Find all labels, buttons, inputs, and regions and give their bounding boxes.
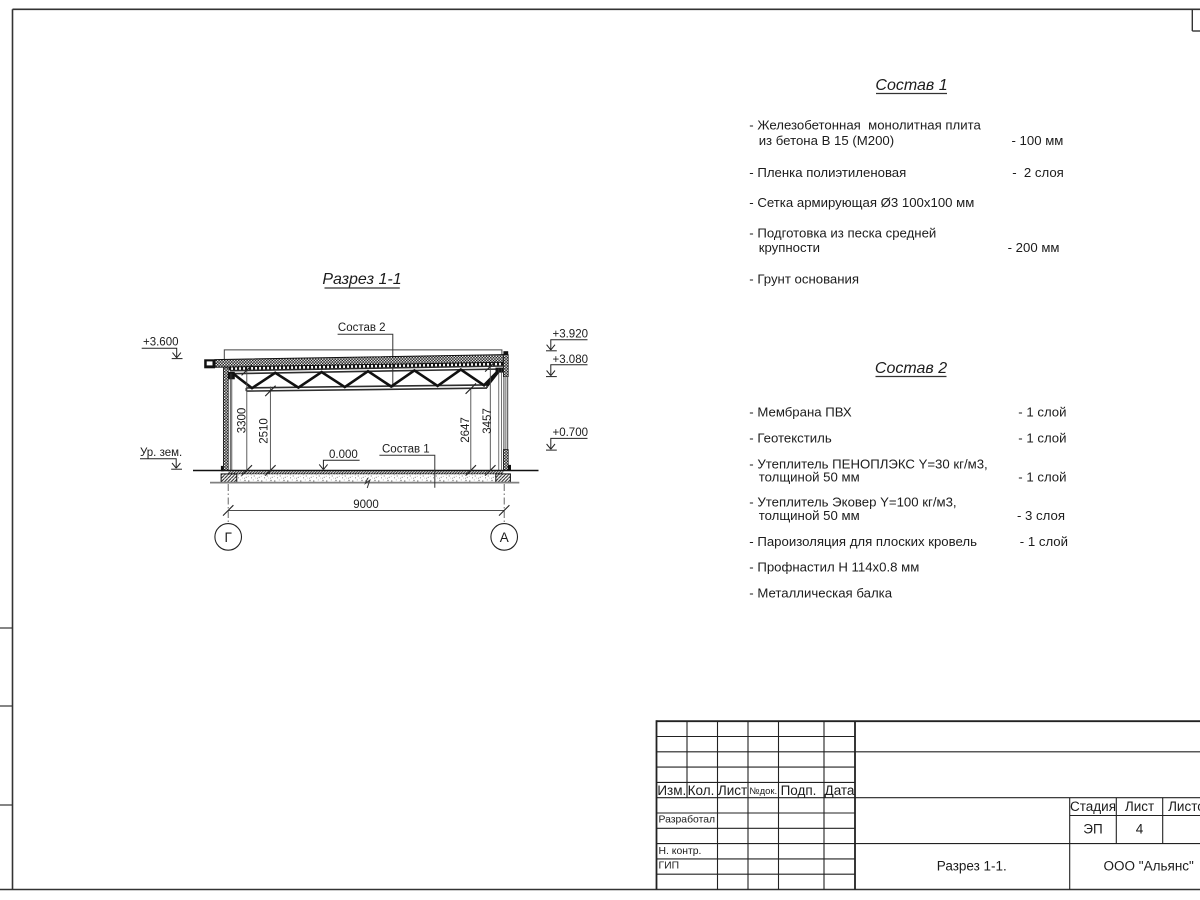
svg-text:2510: 2510 xyxy=(259,418,271,444)
svg-text:+3.920: +3.920 xyxy=(553,328,589,340)
svg-text:Кол.: Кол. xyxy=(688,783,715,798)
svg-text:крупности: крупности xyxy=(759,240,820,255)
svg-text:4: 4 xyxy=(1136,822,1144,837)
svg-text:- Мембрана ПВХ: - Мембрана ПВХ xyxy=(749,405,852,420)
svg-text:- Металлическая балка: - Металлическая балка xyxy=(749,586,892,601)
svg-text:- 200 мм: - 200 мм xyxy=(1008,240,1060,255)
svg-text:Стадия: Стадия xyxy=(1070,799,1116,814)
svg-text:Лист: Лист xyxy=(718,783,747,798)
svg-text:- Пароизоляция для плоских кро: - Пароизоляция для плоских кровель xyxy=(749,534,977,549)
svg-text:- Железобетонная монолитная п: - Железобетонная монолитная плита xyxy=(749,118,981,133)
svg-text:9000: 9000 xyxy=(353,499,379,511)
svg-text:- 100 мм: - 100 мм xyxy=(1012,133,1064,148)
svg-text:Дата: Дата xyxy=(825,783,855,798)
svg-text:ГИП: ГИП xyxy=(659,861,680,872)
svg-text:- 1 слой: - 1 слой xyxy=(1018,405,1066,420)
svg-text:- 1 слой: - 1 слой xyxy=(1020,534,1068,549)
svg-text:Г: Г xyxy=(225,530,233,545)
svg-text:- Профнастил Н 114х0.8 мм: - Профнастил Н 114х0.8 мм xyxy=(749,560,919,575)
svg-text:- Подготовка из песка средней: - Подготовка из песка средней xyxy=(749,226,936,241)
svg-text:- Грунт основания: - Грунт основания xyxy=(749,272,859,287)
svg-text:- Сетка армирующая Ø3 100х100: - Сетка армирующая Ø3 100х100 мм xyxy=(749,195,974,210)
svg-text:из бетона В 15 (М200): из бетона В 15 (М200) xyxy=(759,133,894,148)
svg-text:+3.600: +3.600 xyxy=(143,336,179,348)
svg-text:ООО "Альянс": ООО "Альянс" xyxy=(1104,859,1194,874)
svg-text:Ур. зем.: Ур. зем. xyxy=(140,447,182,459)
svg-text:+3.080: +3.080 xyxy=(553,354,589,366)
svg-text:+0.700: +0.700 xyxy=(553,427,589,439)
svg-text:Разрез 1-1.: Разрез 1-1. xyxy=(937,859,1007,874)
svg-text:Н. контр.: Н. контр. xyxy=(659,846,702,857)
svg-text:Разрез 1-1: Разрез 1-1 xyxy=(322,271,401,288)
svg-text:Состав 2: Состав 2 xyxy=(875,360,947,377)
svg-text:Состав 2: Состав 2 xyxy=(338,322,386,334)
svg-text:0.000: 0.000 xyxy=(329,449,358,461)
svg-text:ЭП: ЭП xyxy=(1083,822,1102,837)
svg-text:2647: 2647 xyxy=(460,417,472,443)
svg-text:- Пленка полиэтиленовая: - Пленка полиэтиленовая xyxy=(749,165,906,180)
svg-text:- 1 слой: - 1 слой xyxy=(1018,469,1066,484)
svg-text:3300: 3300 xyxy=(237,408,249,434)
svg-text:- 1 слой: - 1 слой xyxy=(1018,431,1066,446)
svg-text:Состав 1: Состав 1 xyxy=(382,443,430,455)
svg-text:Листов: Листов xyxy=(1168,799,1200,814)
svg-text:Разработал: Разработал xyxy=(659,813,716,825)
svg-text:- 3 слоя: - 3 слоя xyxy=(1017,508,1065,523)
svg-text:Подп.: Подп. xyxy=(781,783,817,798)
svg-text:Состав 1: Состав 1 xyxy=(875,77,947,94)
svg-text:№док.: №док. xyxy=(749,786,777,797)
svg-text:А: А xyxy=(500,530,509,545)
svg-text:толщиной 50 мм: толщиной 50 мм xyxy=(759,469,860,484)
svg-text:толщиной 50 мм: толщиной 50 мм xyxy=(759,508,860,523)
svg-text:Изм.: Изм. xyxy=(657,783,686,798)
svg-text:3457: 3457 xyxy=(482,408,494,434)
svg-text:- Геотекстиль: - Геотекстиль xyxy=(749,431,832,446)
svg-text:- 2 слоя: - 2 слоя xyxy=(1012,165,1064,180)
svg-text:Лист: Лист xyxy=(1125,799,1154,814)
